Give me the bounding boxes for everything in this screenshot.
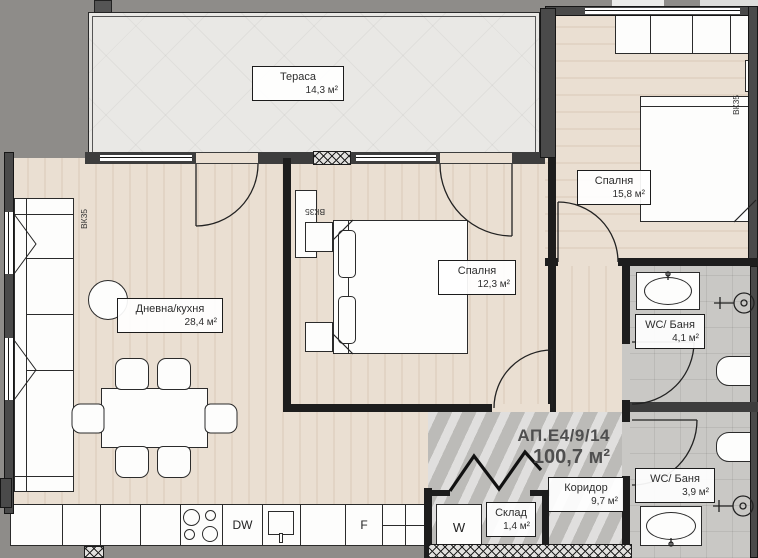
door-arc xyxy=(494,350,552,408)
room-name: Коридор xyxy=(554,481,618,495)
room-name: Спалня xyxy=(583,174,645,188)
shaft-label: ВК35 xyxy=(79,209,89,229)
room-label-living-kitchen: Дневна/кухня 28,4 м² xyxy=(117,298,223,333)
room-label-storage: Склад 1,4 м² xyxy=(486,502,536,537)
room-label-terrace: Тераса 14,3 м² xyxy=(252,66,344,101)
room-area: 9,7 м² xyxy=(554,495,618,508)
room-label-bath-top: WC/ Баня 4,1 м² xyxy=(635,314,705,349)
room-label-corridor: Коридор 9,7 м² xyxy=(548,477,624,512)
door-arc xyxy=(632,342,694,404)
room-label-bedroom-small: Спалня 12,3 м² xyxy=(438,260,516,295)
unit-area: 100,7 м² xyxy=(460,446,610,469)
shaft-label: ВК35 xyxy=(305,207,325,217)
room-area: 15,8 м² xyxy=(583,188,645,201)
door-arc xyxy=(196,164,258,226)
room-area: 12,3 м² xyxy=(444,278,510,291)
room-name: Склад xyxy=(492,506,530,520)
floor-plan: DW F W xyxy=(0,0,758,558)
room-area: 14,3 м² xyxy=(258,84,338,97)
room-name: WC/ Баня xyxy=(641,472,709,486)
room-name: Спалня xyxy=(444,264,510,278)
door-arc xyxy=(440,164,512,236)
shower-head-icon xyxy=(714,293,754,313)
room-area: 4,1 м² xyxy=(641,332,699,345)
room-area: 28,4 м² xyxy=(123,316,217,329)
unit-title: АП.Е4/9/14 100,7 м² xyxy=(460,426,610,469)
shower-head-icon xyxy=(713,496,753,516)
room-label-bath-bottom: WC/ Баня 3,9 м² xyxy=(635,468,715,503)
shaft-label: ВК35 xyxy=(731,95,741,115)
room-area: 3,9 м² xyxy=(641,486,709,499)
window-opening-mark xyxy=(14,214,36,400)
room-label-bedroom-large: Спалня 15,8 м² xyxy=(577,170,651,205)
door-arc xyxy=(558,202,618,262)
room-name: Дневна/кухня xyxy=(123,302,217,316)
unit-number: АП.Е4/9/14 xyxy=(460,426,610,446)
room-area: 1,4 м² xyxy=(492,520,530,533)
room-name: Тераса xyxy=(258,70,338,84)
room-name: WC/ Баня xyxy=(641,318,699,332)
